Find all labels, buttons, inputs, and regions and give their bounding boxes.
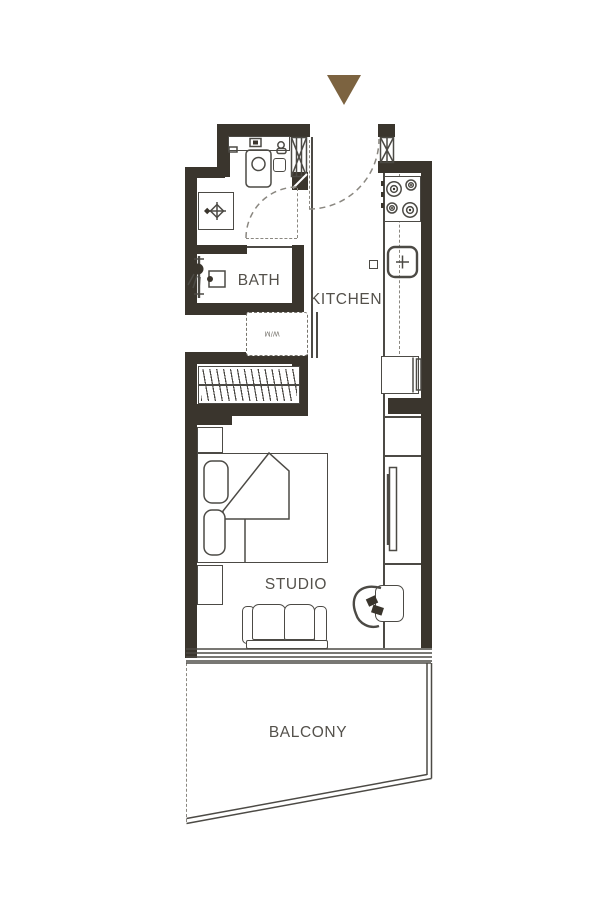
sofa-cushion-right [284,604,315,640]
cabinet-line-2 [384,455,421,457]
entry-marker-icon [327,75,361,105]
wall-fridge-stub [388,398,432,414]
wash-basin [198,192,234,230]
cabinet-line-3 [384,563,421,565]
room-label-kitchen: KITCHEN [310,291,382,309]
sofa-cushion-left [252,604,286,640]
room-label-studio: STUDIO [265,576,327,594]
entry-jamb-left-icon [292,138,307,177]
laundry-wall-line [316,312,318,358]
wall-entry-right-stub [378,124,395,137]
room-label-bath: BATH [238,272,281,290]
wardrobe-rail [199,384,299,386]
kitchen-sink-icon [388,247,417,277]
bath-door-swing [246,187,297,238]
wall-switch [369,260,378,269]
sofa-arm-right [314,606,327,644]
balcony-railing [186,663,432,824]
balcony-left-edge [186,663,187,822]
toilet-bin [273,158,286,172]
counter-edge-line [383,173,385,648]
tub-divider-line [247,246,292,248]
entry-jamb-right-icon [381,138,394,163]
bath-door-leaf [297,188,298,238]
refrigerator [381,356,419,394]
double-bed [197,453,328,563]
wall-wardrobe-stub [197,404,232,425]
sofa-seat [246,640,328,649]
entry-door-leaf [309,140,310,209]
wall-tub-divider [185,245,247,254]
desk [375,585,404,622]
wall-door-stop [292,172,308,190]
cooktop [384,176,421,222]
washer-label: W/M [264,330,279,337]
wall-bath-right [292,245,304,315]
cabinet-line-1 [384,416,421,418]
floor-plan: BATH KITCHEN STUDIO BALCONY W/M [0,0,600,911]
vanity-counter [228,136,290,151]
window-band [186,649,432,661]
bath-door-open [246,238,297,239]
corridor-wall-line [311,137,313,358]
room-label-balcony: BALCONY [269,724,347,742]
nightstand-top [197,427,223,453]
entry-door-swing [309,139,379,209]
wall-left-studio [185,352,197,658]
tv-icon [388,468,397,551]
nightstand-bottom [197,565,223,605]
wall-left-upper [185,167,197,315]
